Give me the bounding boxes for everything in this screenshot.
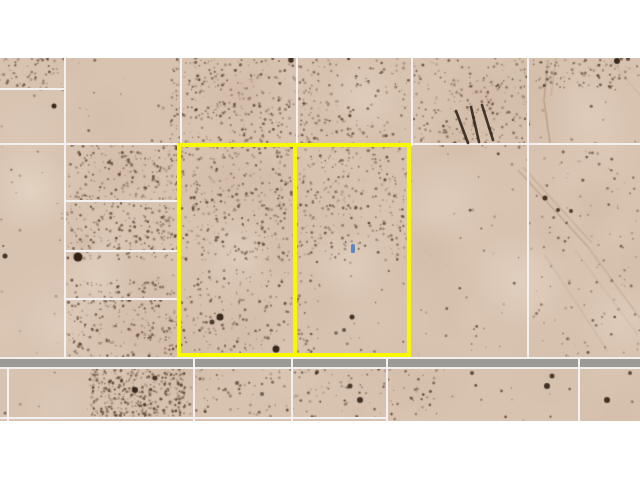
pole-shadows-icon (448, 101, 498, 149)
parcel-line-vertical (527, 58, 529, 358)
parcel-line-vertical (411, 58, 413, 146)
satellite-map-viewport[interactable] (0, 58, 640, 421)
top-whitespace-band (0, 0, 640, 58)
pole-shadow-stroke (456, 111, 468, 143)
road (0, 357, 640, 369)
parcel-line-vertical (291, 357, 293, 421)
parcel-line-horizontal (64, 298, 180, 300)
screenshot-root: { "scene": { "description": "Aerial sate… (0, 0, 640, 480)
parcel-line-horizontal (0, 88, 65, 90)
parcel-line-vertical (386, 357, 388, 421)
parcel-line-vertical (296, 58, 298, 146)
parcel-line-vertical (180, 58, 182, 146)
parcel-line-vertical (64, 58, 66, 358)
parcel-line-vertical (578, 357, 580, 421)
pole-shadow-stroke (482, 105, 493, 140)
bottom-whitespace-band (0, 421, 640, 480)
parcel-line-vertical (193, 357, 195, 421)
blue-map-marker[interactable] (351, 244, 355, 253)
parcel-line-horizontal (64, 250, 180, 252)
pole-shadow-stroke (471, 107, 479, 142)
highlight-parcel-west-lot[interactable] (177, 143, 297, 357)
parcel-line-vertical (7, 368, 9, 421)
parcel-line-horizontal (64, 200, 180, 202)
